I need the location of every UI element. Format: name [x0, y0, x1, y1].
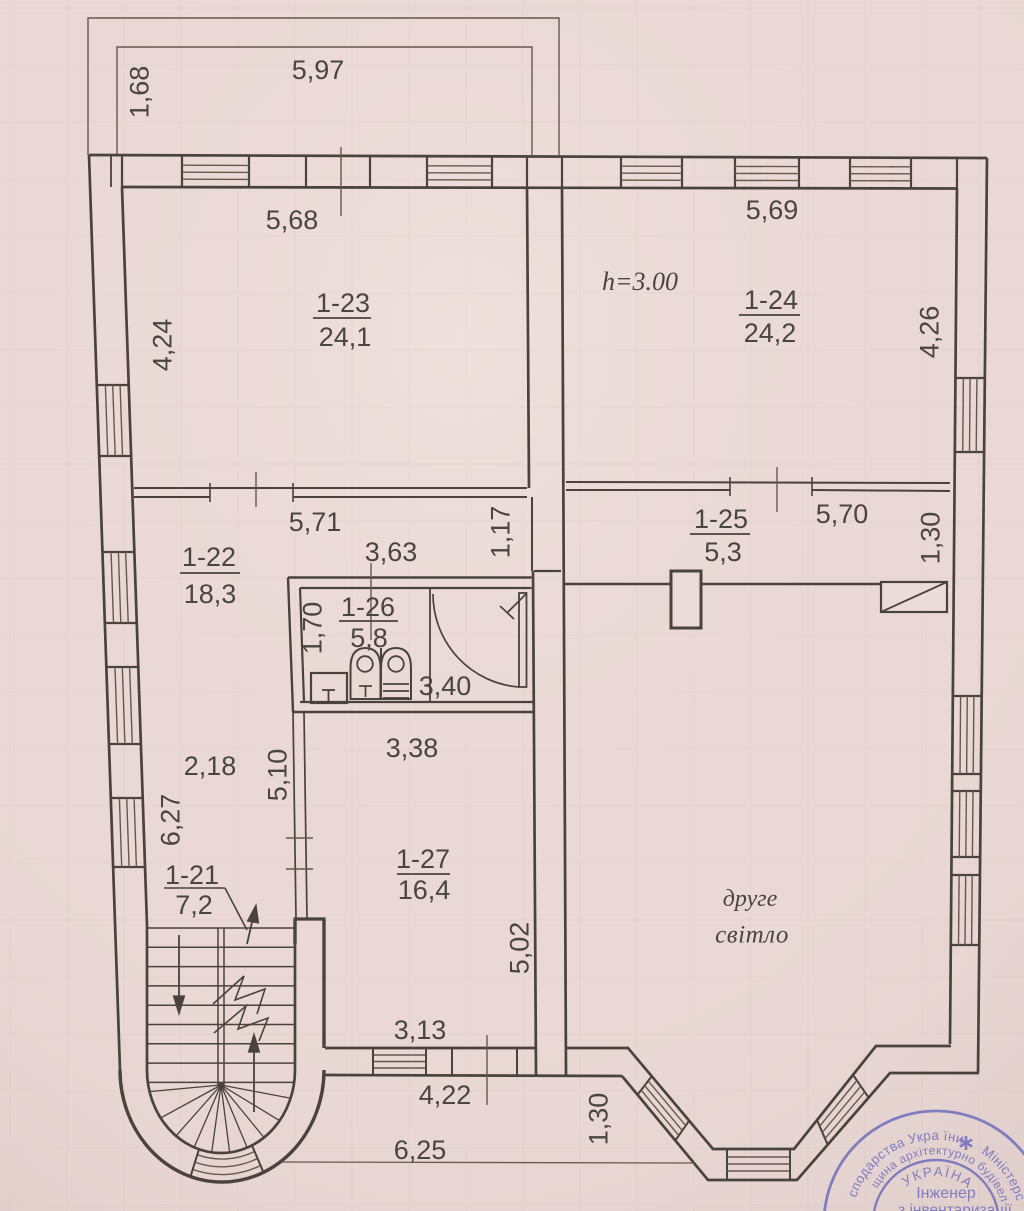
svg-text:світло: світло: [715, 922, 789, 949]
svg-text:h=3.00: h=3.00: [602, 267, 678, 296]
svg-text:1-21: 1-21: [165, 860, 219, 890]
svg-text:1,70: 1,70: [298, 602, 328, 655]
svg-text:6,27: 6,27: [156, 794, 186, 847]
svg-text:5,10: 5,10: [263, 749, 293, 802]
svg-text:2,18: 2,18: [184, 751, 237, 781]
svg-text:1,17: 1,17: [486, 506, 516, 559]
svg-text:4,22: 4,22: [419, 1080, 472, 1110]
svg-text:1,30: 1,30: [584, 1093, 614, 1146]
svg-text:5,68: 5,68: [266, 205, 319, 235]
svg-text:4,24: 4,24: [148, 319, 178, 372]
svg-text:3,63: 3,63: [365, 537, 418, 567]
svg-text:18,3: 18,3: [184, 579, 237, 609]
svg-text:1-24: 1-24: [744, 285, 798, 315]
svg-text:3,40: 3,40: [419, 671, 472, 701]
svg-text:Інженер: Інженер: [916, 1185, 976, 1202]
svg-text:5,02: 5,02: [505, 922, 535, 975]
svg-text:друге: друге: [723, 886, 778, 912]
svg-text:5,8: 5,8: [350, 623, 388, 653]
svg-text:з інвентаризації: з інвентаризації: [898, 1202, 1013, 1211]
svg-text:1,68: 1,68: [125, 66, 155, 119]
svg-text:1-27: 1-27: [396, 844, 450, 874]
svg-text:4,26: 4,26: [915, 306, 945, 359]
svg-text:1-23: 1-23: [316, 288, 370, 318]
svg-text:5,97: 5,97: [292, 55, 345, 85]
svg-text:5,69: 5,69: [746, 195, 799, 225]
svg-text:1-25: 1-25: [694, 504, 748, 534]
svg-text:5,3: 5,3: [704, 537, 742, 567]
svg-text:6,25: 6,25: [394, 1135, 447, 1165]
svg-text:24,1: 24,1: [319, 322, 372, 352]
svg-text:16,4: 16,4: [398, 875, 451, 905]
svg-text:5,71: 5,71: [289, 507, 342, 537]
svg-text:3,38: 3,38: [386, 733, 439, 763]
svg-text:5,70: 5,70: [816, 499, 869, 529]
svg-text:1,30: 1,30: [916, 512, 946, 565]
svg-text:1-26: 1-26: [341, 592, 395, 622]
svg-text:24,2: 24,2: [744, 318, 797, 348]
svg-text:1-22: 1-22: [182, 542, 236, 572]
svg-text:3,13: 3,13: [394, 1015, 447, 1045]
svg-text:7,2: 7,2: [175, 890, 213, 920]
